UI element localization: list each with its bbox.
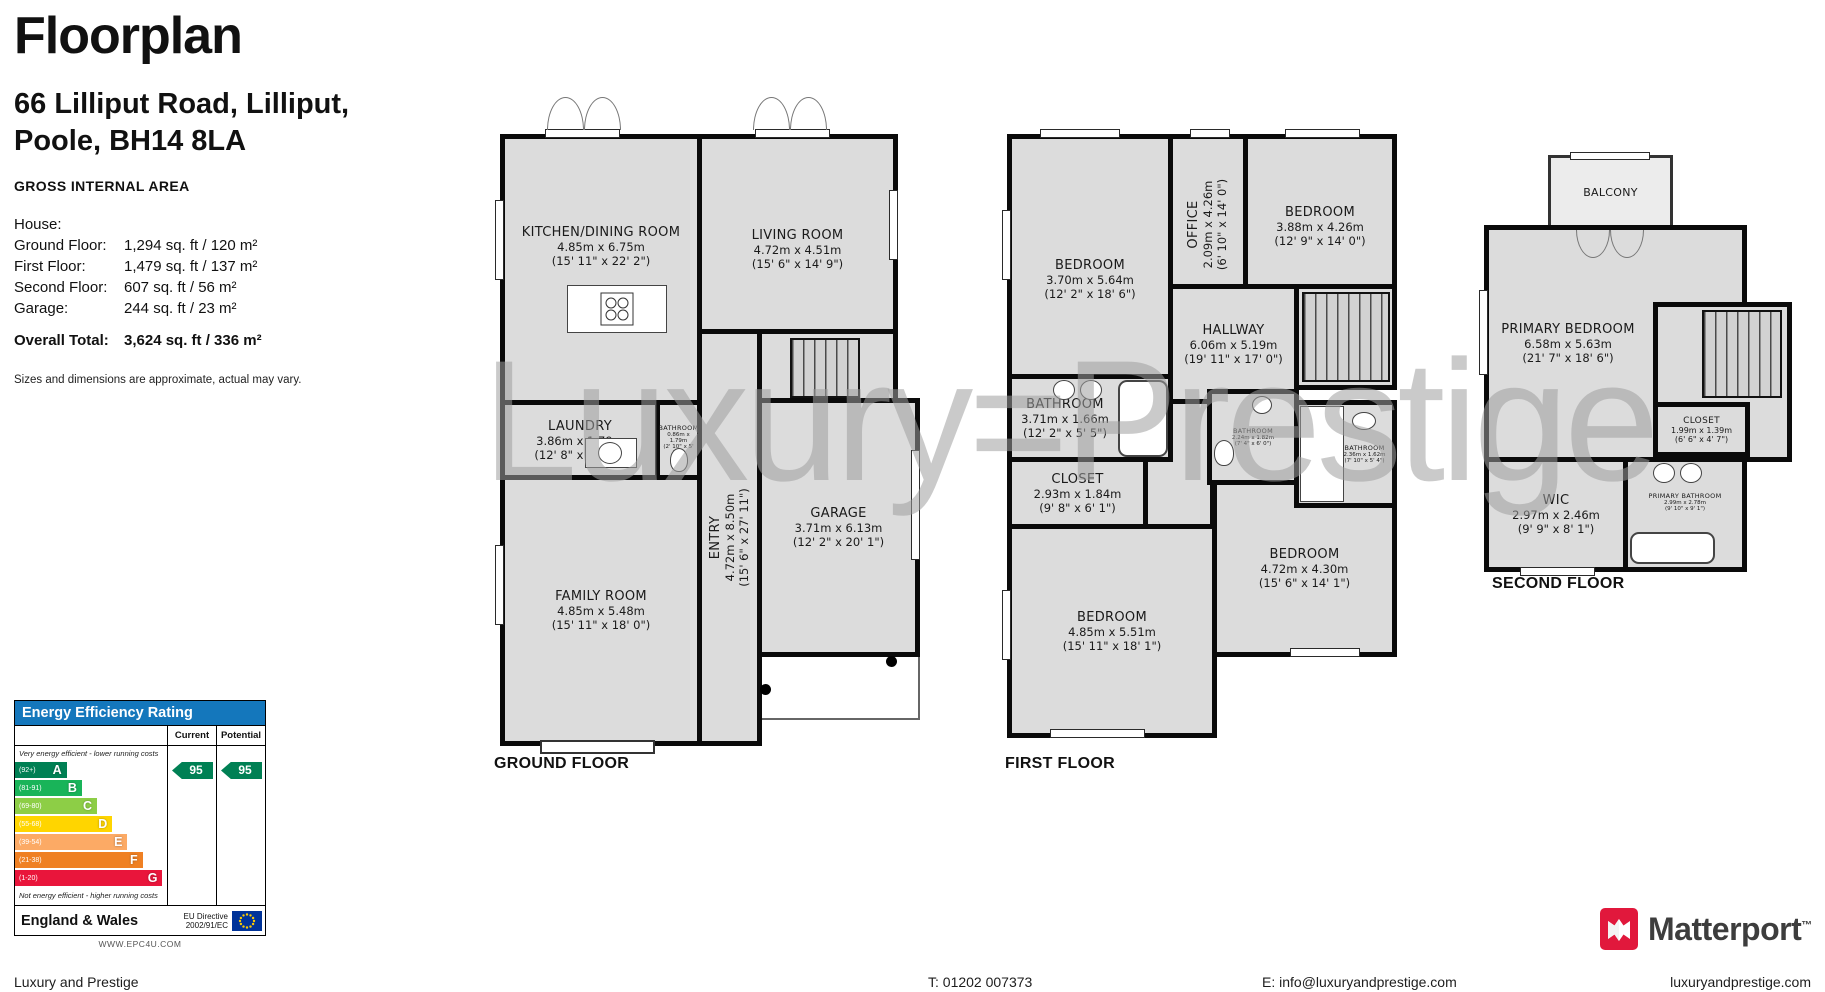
epc-band-column: Very energy efficient - lower running co… [15,726,167,905]
stairs-icon [790,338,860,398]
room-dim-m: 3.71m x 1.66m [1021,412,1109,426]
table-row: Second Floor:607 sq. ft / 56 m² [14,277,257,298]
room-dim-m: 4.72m x 4.51m [752,243,844,257]
window [1190,129,1230,138]
window [1050,729,1145,738]
address-line-2: Poole, BH14 8LA [14,123,349,160]
second-floor-label: SECOND FLOOR [1492,575,1625,593]
window [1002,590,1011,660]
room-family: FAMILY ROOM 4.85m x 5.48m (15' 11" x 18'… [500,475,702,746]
room-name: PRIMARY BEDROOM [1501,322,1634,337]
room-name: ENTRY [708,488,723,587]
room-name: BATHROOM [658,424,698,432]
room-name: BEDROOM [1274,205,1365,220]
table-row: First Floor:1,479 sq. ft / 137 m² [14,256,257,277]
room-label: BEDROOM 4.85m x 5.51m (15' 11" x 18' 1") [1063,610,1162,653]
room-label: OFFICE 2.09m x 4.26m (6' 10" x 14' 0") [1187,178,1230,269]
epc-website: WWW.EPC4U.COM [14,939,266,949]
room-dim-m: 4.72m x 4.30m [1259,562,1350,576]
room-label: BEDROOM 4.72m x 4.30m (15' 6" x 14' 1") [1259,547,1350,590]
post-dot [886,656,897,667]
kitchen-island [567,285,667,333]
room-name: BEDROOM [1063,610,1162,625]
footer-email-link[interactable]: E: info@luxuryandprestige.com [1262,974,1457,990]
toilet-icon [1214,440,1234,466]
room-kitchen-dining: KITCHEN/DINING ROOM 4.85m x 6.75m (15' 1… [500,134,702,405]
window [911,450,920,560]
room-name: HALLWAY [1184,323,1283,338]
room-name: WIC [1512,493,1600,508]
footer-phone: T: 01202 007373 [928,974,1032,990]
ground-floor-label: GROUND FLOOR [494,755,629,773]
epc-footer: England & Wales EU Directive 2002/91/EC [14,906,266,936]
epc-potential-column: Potential 95 [216,726,265,905]
room-dim-ft: (12' 2" x 5' 5") [1021,426,1109,440]
room-dim-m: 6.06m x 5.19m [1184,338,1283,352]
gia-heading: GROSS INTERNAL AREA [14,178,190,194]
room-name: GARAGE [793,506,884,521]
gia-row-value: 1,294 sq. ft / 120 m² [124,235,257,256]
french-door-arc-icon [584,97,621,130]
room-name: CLOSET [1034,472,1122,487]
epc-potential-header: Potential [217,726,265,746]
table-row: Garage:244 sq. ft / 23 m² [14,298,257,319]
room-hallway: HALLWAY 6.06m x 5.19m (19' 11" x 17' 0") [1168,284,1299,404]
matterport-text: Matterport [1648,911,1801,947]
epc-band-range: (21-38) [19,857,130,864]
stairs-icon [1702,310,1782,398]
post-dot [760,684,771,695]
room-label: LIVING ROOM 4.72m x 4.51m (15' 6" x 14' … [752,198,844,271]
gia-row-value: 244 sq. ft / 23 m² [124,298,237,319]
room-dim-m: 4.72m x 8.50m [723,488,737,587]
room-dim-ft: (12' 2" x 18' 6") [1044,287,1135,301]
epc-directive-line1: EU Directive [184,912,228,921]
room-dim-ft: (7' 10" x 5' 4") [1344,458,1386,464]
table-row: Ground Floor:1,294 sq. ft / 120 m² [14,235,257,256]
room-label: CLOSET 1.99m x 1.39m (6' 6" x 4' 7") [1671,416,1732,444]
stove-icon [600,292,634,326]
first-floor-label: FIRST FLOOR [1005,755,1115,773]
room-dim-ft: (6' 6" x 4' 7") [1671,435,1732,444]
gia-row-label: House: [14,214,124,235]
epc-potential-rating-arrow: 95 [221,762,262,779]
sink-icon [1653,463,1675,483]
gia-row-label: Ground Floor: [14,235,124,256]
room-dim-m: 4.85m x 6.75m [522,240,680,254]
gia-row-value: 1,479 sq. ft / 137 m² [124,256,257,277]
epc-bottom-note: Not energy efficient - higher running co… [15,888,167,902]
footer-company: Luxury and Prestige [14,974,139,990]
epc-current-column: Current 95 [167,726,216,905]
bay-window [540,740,655,754]
disclaimer-text: Sizes and dimensions are approximate, ac… [14,374,301,386]
toilet-icon [670,448,688,472]
room-dim-m: 4.85m x 5.48m [552,604,651,618]
window [1040,129,1120,138]
room-dim-ft: (9' 8" x 6' 1") [1034,501,1122,515]
epc-band-letter: G [148,871,158,885]
window [495,545,504,625]
epc-band-range: (81-91) [19,785,68,792]
epc-table: Very energy efficient - lower running co… [14,725,266,906]
room-bedroom-2: BEDROOM 3.88m x 4.26m (12' 9" x 14' 0") [1243,134,1397,289]
room-name: CLOSET [1671,416,1732,426]
room-name: BATHROOM [1232,427,1274,435]
room-garage: GARAGE 3.71m x 6.13m (12' 2" x 20' 1") [757,398,920,657]
epc-band-d: (55-68)D [15,816,112,832]
room-dim-ft: (12' 9" x 14' 0") [1274,234,1365,248]
room-bedroom-4: BEDROOM 4.85m x 5.51m (15' 11" x 18' 1") [1007,524,1217,738]
epc-band-b: (81-91)B [15,780,82,796]
room-dim-ft: (15' 6" x 14' 9") [752,257,844,271]
sink-icon [598,442,622,464]
room-living: LIVING ROOM 4.72m x 4.51m (15' 6" x 14' … [697,134,898,334]
epc-top-note: Very energy efficient - lower running co… [15,746,167,760]
room-balcony: BALCONY [1548,155,1673,230]
room-label: HALLWAY 6.06m x 5.19m (19' 11" x 17' 0") [1184,323,1283,366]
property-address: 66 Lilliput Road, Lilliput, Poole, BH14 … [14,86,349,160]
gia-total-row: Overall Total: 3,624 sq. ft / 336 m² [14,332,262,349]
epc-band-letter: B [68,781,77,795]
gia-total-label: Overall Total: [14,332,124,349]
room-bedroom-1: BEDROOM 3.70m x 5.64m (12' 2" x 18' 6") [1007,134,1173,379]
epc-band-letter: F [130,853,138,867]
room-dim-ft: (12' 2" x 20' 1") [793,535,884,549]
epc-directive: EU Directive 2002/91/EC [184,912,228,930]
room-dim-ft: (21' 7" x 18' 6") [1501,351,1634,365]
room-dim-m: 3.70m x 5.64m [1044,273,1135,287]
room-dim-m: 1.99m x 1.39m [1671,426,1732,435]
room-dim-ft: (15' 6" x 27' 11") [737,488,751,587]
table-row: House: [14,214,257,235]
room-label: WIC 2.97m x 2.46m (9' 9" x 8' 1") [1512,493,1600,536]
room-dim-ft: (15' 11" x 22' 2") [522,254,680,268]
room-label: FAMILY ROOM 4.85m x 5.48m (15' 11" x 18'… [552,589,651,632]
trademark-symbol: ™ [1801,919,1812,931]
room-name: LIVING ROOM [752,228,844,243]
room-label: BALCONY [1583,186,1638,199]
window [545,129,620,138]
epc-band-range: (39-54) [19,839,114,846]
eu-flag-icon [232,911,262,931]
epc-current-header: Current [168,726,216,746]
room-closet-first: CLOSET 2.93m x 1.84m (9' 8" x 6' 1") [1007,457,1148,529]
epc-band-letter: A [53,763,62,777]
room-dim-ft: (19' 11" x 17' 0") [1184,352,1283,366]
sink-icon [1680,463,1702,483]
window [1290,648,1360,657]
room-name: BEDROOM [1044,258,1135,273]
gia-row-label: Second Floor: [14,277,124,298]
epc-band-range: (1-20) [19,875,148,882]
room-label: BATHROOM 2.24m x 1.82m (7' 4" x 6' 0") [1232,427,1274,447]
epc-band-c: (69-80)C [15,798,97,814]
room-dim-ft: (15' 11" x 18' 0") [552,618,651,632]
room-name: BATHROOM [1344,444,1386,452]
page-title: Floorplan [14,6,242,66]
room-dim-m: 6.58m x 5.63m [1501,337,1634,351]
room-dim-m: 3.71m x 6.13m [793,521,884,535]
room-name: BALCONY [1583,186,1638,199]
epc-directive-line2: 2002/91/EC [186,921,228,930]
bathtub-icon [1630,532,1715,564]
epc-region: England & Wales [21,913,184,929]
room-dim-ft: (9' 10" x 9' 1") [1649,506,1722,512]
french-door-arc-icon [547,97,584,130]
window [889,190,898,260]
epc-header-spacer [15,726,167,746]
gia-row-label: First Floor: [14,256,124,277]
room-dim-ft: (15' 11" x 18' 1") [1063,639,1162,653]
room-label: BEDROOM 3.88m x 4.26m (12' 9" x 14' 0") [1274,175,1365,248]
window [755,129,830,138]
room-dim-m: 3.88m x 4.26m [1274,220,1365,234]
address-line-1: 66 Lilliput Road, Lilliput, [14,86,349,123]
room-dim-ft: (15' 6" x 14' 1") [1259,576,1350,590]
epc-band-f: (21-38)F [15,852,143,868]
room-dim-ft: (6' 10" x 14' 0") [1216,178,1230,269]
epc-band-e: (39-54)E [15,834,127,850]
matterport-wordmark: Matterport™ [1648,911,1812,948]
room-dim-m: 4.85m x 5.51m [1063,625,1162,639]
epc-band-range: (92+) [19,767,53,774]
epc-title: Energy Efficiency Rating [14,700,266,725]
epc-current-rating-arrow: 95 [172,762,213,779]
room-label: PRIMARY BATHROOM 2.99m x 2.78m (9' 10" x… [1649,492,1722,537]
matterport-logo: Matterport™ [1600,908,1812,950]
french-door-arc-icon [790,97,827,130]
matterport-icon [1600,908,1638,950]
room-label: CLOSET 2.93m x 1.84m (9' 8" x 6' 1") [1034,472,1122,515]
epc-band-range: (55-68) [19,821,98,828]
window [1479,290,1488,375]
room-label: BEDROOM 3.70m x 5.64m (12' 2" x 18' 6") [1044,212,1135,301]
floorplan-page: Floorplan 66 Lilliput Road, Lilliput, Po… [0,0,1825,992]
gia-row-value: 607 sq. ft / 56 m² [124,277,237,298]
gia-table: House: Ground Floor:1,294 sq. ft / 120 m… [14,214,257,319]
room-wic: WIC 2.97m x 2.46m (9' 9" x 8' 1") [1484,457,1628,572]
energy-efficiency-chart: Energy Efficiency Rating Very energy eff… [14,700,266,949]
french-door-arc-icon [753,97,790,130]
sink-icon [1080,380,1102,400]
epc-band-letter: E [114,835,122,849]
room-dim-m: 2.09m x 4.26m [1202,178,1216,269]
shower-icon [1300,406,1344,502]
epc-band-g: (1-20)G [15,870,162,886]
room-name: KITCHEN/DINING ROOM [522,225,680,240]
window [495,200,504,280]
room-dim-m: 0.86m x 1.79m [658,432,698,444]
window [1285,129,1360,138]
bathtub-icon [1118,380,1168,457]
room-dim-m: 2.97m x 2.46m [1512,508,1600,522]
gia-row-label: Garage: [14,298,124,319]
window [1570,152,1650,160]
window [1002,210,1011,280]
sink-icon [1352,412,1376,430]
epc-band-range: (69-80) [19,803,83,810]
sink-icon [1252,396,1272,414]
room-name: OFFICE [1187,178,1202,269]
room-entry: ENTRY 4.72m x 8.50m (15' 6" x 27' 11") [697,329,762,746]
room-dim-ft: (9' 9" x 8' 1") [1512,522,1600,536]
room-closet-second: CLOSET 1.99m x 1.39m (6' 6" x 4' 7") [1653,402,1750,457]
epc-band-letter: C [83,799,92,813]
room-name: BEDROOM [1259,547,1350,562]
sink-icon [1053,380,1075,400]
gia-total-value: 3,624 sq. ft / 336 m² [124,332,262,349]
stairs-icon [1302,292,1390,382]
room-name: FAMILY ROOM [552,589,651,604]
room-dim-ft: (7' 4" x 6' 0") [1232,441,1274,447]
epc-band-a: (92+)A [15,762,67,778]
room-name: LAUNDRY [534,419,625,434]
room-label: ENTRY 4.72m x 8.50m (15' 6" x 27' 11") [708,488,751,587]
epc-band-letter: D [98,817,107,831]
footer-website-link[interactable]: luxuryandprestige.com [1670,974,1811,990]
room-label: GARAGE 3.71m x 6.13m (12' 2" x 20' 1") [793,506,884,549]
room-dim-m: 2.93m x 1.84m [1034,487,1122,501]
room-name: PRIMARY BATHROOM [1649,492,1722,500]
